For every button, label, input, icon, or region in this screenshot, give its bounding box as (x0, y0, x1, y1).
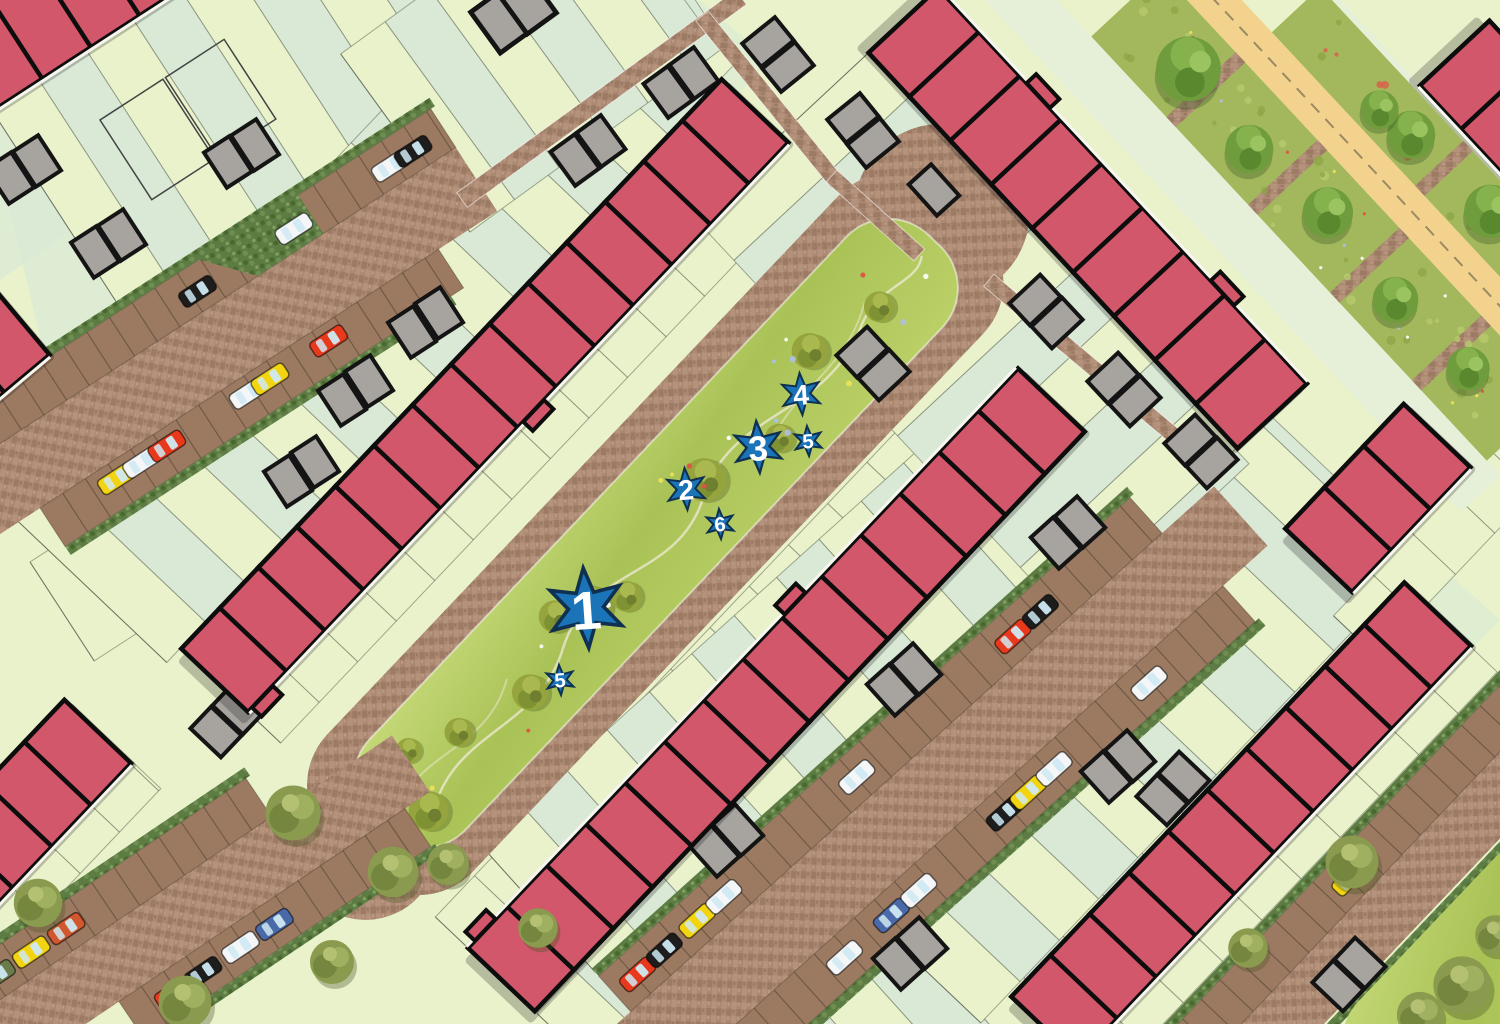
marker-number: 2 (677, 474, 695, 507)
marker-number: 1 (569, 580, 603, 642)
marker-number: 6 (714, 514, 727, 537)
marker-number: 5 (554, 670, 567, 693)
site-plan-map: 1234565 (0, 0, 1500, 1024)
marker-number: 4 (792, 379, 810, 412)
site-plan-canvas: 1234565 (0, 0, 1500, 1024)
marker-number: 5 (802, 431, 815, 454)
marker-number: 3 (747, 429, 769, 469)
